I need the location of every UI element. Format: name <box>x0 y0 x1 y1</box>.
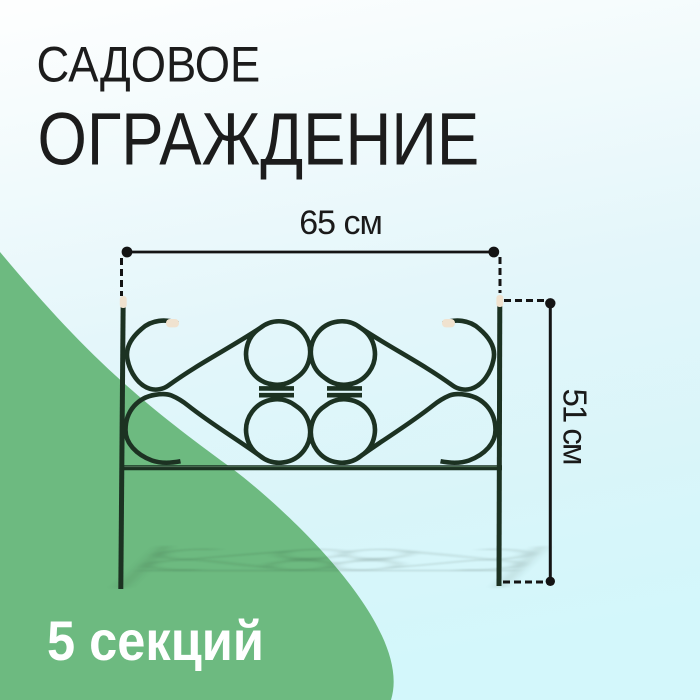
svg-text:ОГРАЖДЕНИЕ: ОГРАЖДЕНИЕ <box>38 98 480 181</box>
svg-text:5 секций: 5 секций <box>47 611 264 673</box>
svg-text:65 см: 65 см <box>299 204 382 242</box>
svg-text:51 см: 51 см <box>557 389 594 464</box>
svg-text:САДОВОЕ: САДОВОЕ <box>37 37 261 93</box>
